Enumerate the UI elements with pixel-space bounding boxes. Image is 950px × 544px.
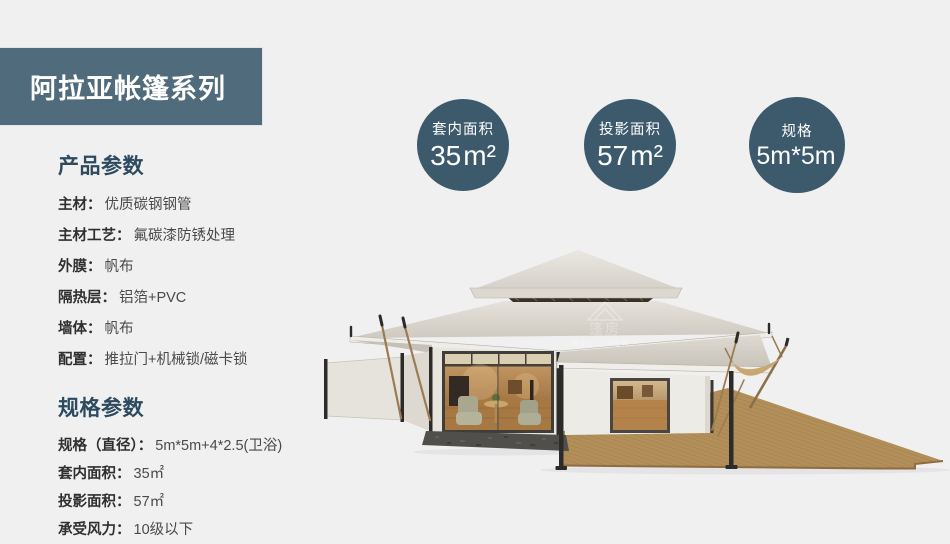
series-title: 阿拉亚帐篷系列 [30,67,226,106]
section-title-product-params: 产品参数 [58,150,378,180]
badge-interior-area: 套内面积 35m² [417,99,509,191]
badge-label: 规格 [782,120,813,141]
badge-label: 套内面积 [432,118,494,139]
badge-value: 35m² [430,141,496,172]
svg-text:篷房: 篷房 [589,321,621,337]
badge-size-spec: 规格 5m*5m [749,97,845,193]
param-row: 主材：优质碳钢钢管 [58,190,378,221]
series-title-banner: 阿拉亚帐篷系列 [0,48,262,125]
tent-illustration: 篷房 WELL TENT [320,230,950,530]
badge-label: 投影面积 [599,118,661,139]
badge-value: 5m*5m [756,143,837,171]
badge-value: 57m² [597,141,663,172]
top-roof-tier [470,250,682,302]
main-body [429,347,561,438]
tent-render: 篷房 WELL TENT [320,230,950,530]
porch-wing [565,370,714,435]
badge-projection-area: 投影面积 57m² [584,99,676,191]
